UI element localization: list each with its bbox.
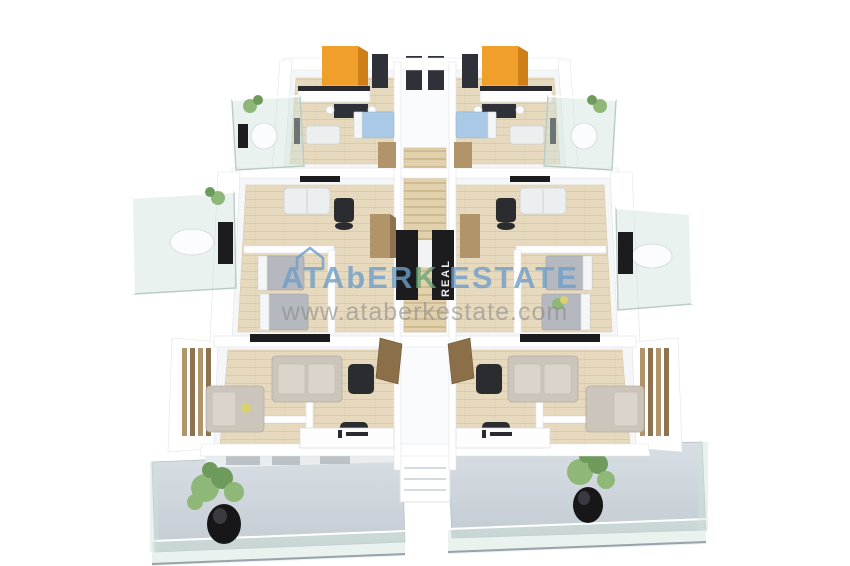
kitchen-counter — [300, 428, 394, 448]
sofa — [306, 126, 340, 144]
bed-pillows — [488, 112, 496, 138]
kitchen-countertop — [298, 86, 370, 91]
orange-wardrobe — [482, 46, 518, 92]
watermark-url: www.ataberkestate.com — [281, 298, 568, 326]
tan-wardrobe — [370, 214, 390, 258]
tv-panel — [520, 334, 600, 342]
office-chair — [334, 198, 354, 230]
armchair-black — [348, 364, 374, 394]
round-table — [571, 123, 597, 149]
kitchen-counter — [456, 428, 550, 448]
entry-stoop — [400, 450, 450, 502]
sofa-throw-pillow — [241, 403, 251, 413]
balcony-mid-right — [616, 208, 692, 310]
dark-cabinet — [372, 54, 388, 88]
plant-foliage — [202, 462, 218, 478]
armchair-black — [476, 364, 502, 394]
balcony-chair — [238, 124, 248, 148]
balcony-top-left — [232, 95, 304, 170]
plant-foliage — [187, 494, 203, 510]
tan-wardrobe — [460, 214, 480, 258]
plant-foliage — [587, 95, 597, 105]
kitchen-countertop — [480, 86, 552, 91]
plant-foliage — [253, 95, 263, 105]
tv-panel — [510, 176, 550, 182]
sofa-beige — [272, 356, 342, 402]
balcony-top-right — [544, 95, 616, 170]
brand-text-blue: ATAbER — [281, 260, 414, 295]
dark-cabinet — [462, 54, 478, 88]
tv-panel — [250, 334, 330, 342]
plant-pot — [573, 487, 603, 523]
watermark: REAL ATAbERK ESTATE www.ataberkestate.co… — [281, 248, 579, 326]
bed-pillows — [581, 294, 590, 330]
tan-wardrobe — [454, 142, 472, 168]
sofa-corner — [586, 386, 644, 432]
door-brown — [448, 338, 474, 384]
staircase-upper-run — [404, 148, 446, 240]
plant-foliage — [597, 471, 615, 489]
sofa — [510, 126, 544, 144]
balcony-mid-left — [132, 187, 236, 294]
floor-plan-canvas: REAL ATAbERK ESTATE www.ataberkestate.co… — [0, 0, 850, 566]
balcony-bench — [218, 222, 233, 264]
dining-chair — [516, 106, 524, 114]
divider-wall-upper — [232, 168, 618, 178]
plant-pot-highlight — [578, 491, 590, 505]
bed-pillows — [354, 112, 362, 138]
plant-pot-highlight — [213, 508, 227, 524]
plant-foliage — [205, 187, 215, 197]
bed-pillows — [260, 294, 269, 330]
bed-pillows — [583, 256, 592, 290]
balcony-bench — [618, 232, 633, 274]
door-brown — [376, 338, 402, 384]
round-table — [251, 123, 277, 149]
oval-table — [170, 229, 214, 255]
office-chair — [496, 198, 516, 230]
interior-wall — [516, 246, 606, 253]
tv-panel — [300, 176, 340, 182]
outer-wall-bottom — [200, 444, 650, 456]
tan-wardrobe — [378, 142, 396, 168]
sofa-beige — [508, 356, 578, 402]
bed-pillows — [258, 256, 267, 290]
plant-foliage — [224, 482, 244, 502]
orange-wardrobe-side — [358, 46, 368, 92]
oval-table — [632, 244, 672, 268]
watermark-brand: ATAbERK ESTATE — [281, 260, 579, 295]
orange-wardrobe — [322, 46, 358, 92]
tan-wardrobe-side — [390, 214, 396, 258]
interior-wall — [244, 246, 334, 253]
dining-chair — [326, 106, 334, 114]
floor-plan-render: REAL ATAbERK ESTATE www.ataberkestate.co… — [0, 0, 850, 566]
glass-railing-side — [698, 442, 708, 530]
orange-wardrobe-side — [518, 46, 528, 92]
brand-text-blue: ESTATE — [439, 260, 579, 295]
sofa-corner — [206, 386, 264, 432]
brand-text-green: K — [414, 260, 438, 295]
